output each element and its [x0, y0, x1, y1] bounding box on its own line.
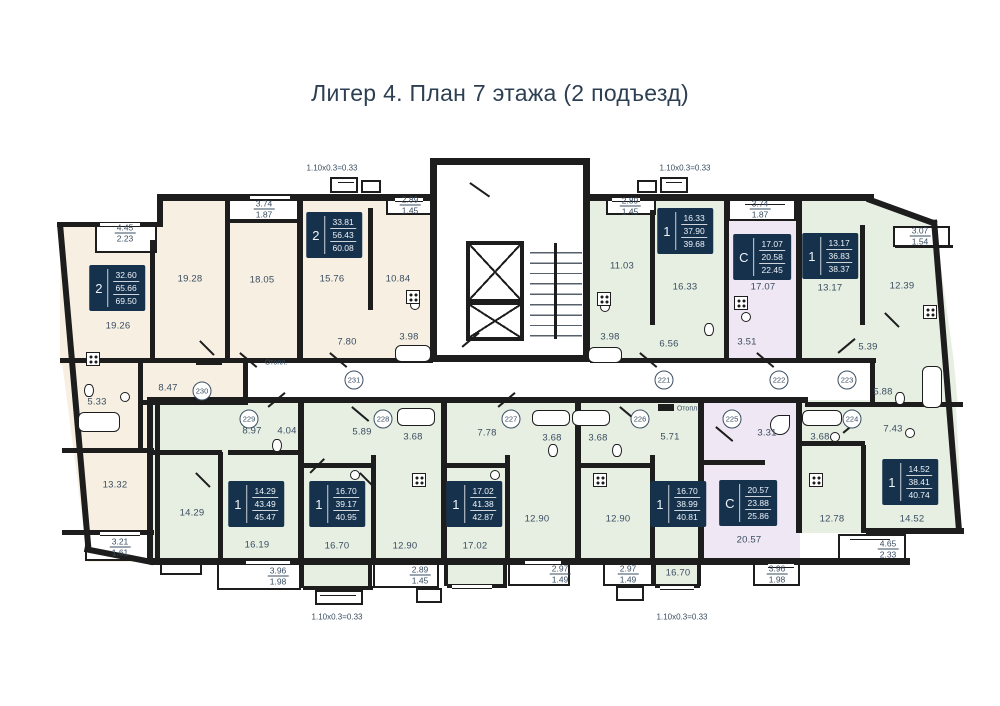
apartment-info-box: 116.7039.1740.95 — [309, 481, 365, 527]
total-area: 40.95 — [333, 510, 358, 523]
wall — [796, 402, 802, 533]
total-area: 60.08 — [330, 241, 355, 254]
room-area-label: 3.68 — [542, 433, 561, 444]
room-area-label: 3.31 — [757, 428, 776, 439]
sink-icon — [120, 392, 130, 402]
balcony-area-bottom: 1.45 — [620, 207, 641, 217]
living-area: 14.52 — [906, 463, 931, 475]
room-area-label: 12.78 — [820, 514, 845, 525]
total-area: 22.45 — [760, 263, 785, 276]
room-area-label: 8.47 — [158, 383, 177, 394]
wall — [445, 463, 509, 468]
balcony-area-bottom: 1.49 — [618, 575, 639, 585]
room-area-label: 5.33 — [87, 397, 106, 408]
apartment-areas: 13.1736.8338.37 — [820, 237, 851, 275]
wall — [228, 450, 302, 455]
apartment-info-box: 114.5238.4140.74 — [882, 459, 938, 505]
toilet-icon — [272, 439, 282, 452]
room-area-label: 5.39 — [858, 342, 877, 353]
balcony-area-top: 3.07 — [910, 226, 931, 237]
living-area: 16.33 — [681, 212, 706, 224]
balcony-area-top: 4.45 — [115, 223, 136, 234]
stove-icon — [593, 473, 607, 487]
living-area: 33.81 — [330, 216, 355, 228]
balcony-area-label: 2.971.49 — [550, 564, 571, 585]
balcony-area-top: 3.74 — [750, 199, 771, 210]
balcony-area-bottom: 1.45 — [400, 206, 421, 216]
heating-label: Отопл. — [677, 406, 699, 413]
room-area-label: 15.76 — [320, 274, 345, 285]
dimension-label: 1.10x0.3=0.33 — [660, 164, 711, 173]
balcony-area-top: 2.89 — [400, 195, 421, 206]
bathtub-icon — [922, 366, 942, 408]
wall — [225, 201, 230, 362]
balcony-area-bottom: 1.61 — [110, 548, 131, 558]
window — [320, 591, 356, 596]
room-area-label: 10.84 — [386, 274, 411, 285]
apartment-number-badge: 228 — [374, 410, 393, 429]
apartment-number-badge: 223 — [838, 371, 857, 390]
window — [246, 560, 290, 565]
wall — [303, 586, 373, 590]
apartment-type: 1 — [315, 497, 322, 512]
apartment-info-box: С17.0720.5822.45 — [733, 234, 791, 280]
floor-plan: 19.2619.2818.058.475.3313.3215.7610.847.… — [0, 0, 1000, 706]
living-area: 20.57 — [746, 484, 771, 496]
window — [452, 584, 492, 589]
room-area-label: 7.43 — [883, 424, 902, 435]
room-area-label: 4.04 — [277, 426, 296, 437]
total-area: 39.68 — [681, 237, 706, 250]
toilet-icon — [704, 323, 714, 336]
sink-icon — [350, 470, 360, 480]
stove-icon — [809, 473, 823, 487]
apartment-number-badge: 222 — [770, 371, 789, 390]
room-area-label: 16.33 — [673, 282, 698, 293]
apartment-areas: 14.5238.4140.74 — [900, 463, 931, 501]
balcony-area-bottom: 1.54 — [910, 237, 931, 247]
balcony-area-top: 2.97 — [550, 564, 571, 575]
room-area-label: 7.80 — [337, 337, 356, 348]
balcony-area-bottom: 1.45 — [410, 576, 431, 586]
apartment-number-badge: 227 — [502, 410, 521, 429]
dimension-label: 1.10x0.3=0.33 — [657, 613, 708, 622]
apartment-areas: 17.0241.3842.87 — [464, 485, 495, 523]
apartment-number-badge: 224 — [843, 410, 862, 429]
wall — [724, 201, 729, 362]
balcony-area-bottom: 1.87 — [254, 210, 275, 220]
apartment-areas: 14.2943.4945.47 — [246, 485, 277, 523]
living-area: 17.07 — [760, 238, 785, 250]
stove-icon — [923, 305, 937, 319]
wall — [581, 463, 653, 468]
balcony-area-bottom: 1.87 — [750, 210, 771, 220]
living-area: 14.29 — [252, 485, 277, 497]
apartment-number-badge: 230 — [193, 382, 212, 401]
floor-plan-page: Литер 4. План 7 этажа (2 подъезд) 19.261… — [0, 0, 1000, 706]
wall — [228, 220, 300, 223]
apartment-areas: 33.8156.4360.08 — [324, 216, 355, 254]
wall — [300, 558, 304, 588]
wall — [368, 558, 372, 588]
apartment-areas: 16.7038.9940.81 — [668, 485, 699, 523]
wall — [698, 397, 704, 560]
balcony-area-top: 4.65 — [878, 539, 899, 550]
wall — [150, 397, 808, 403]
apartment-info-box: 232.6065.6669.50 — [89, 265, 145, 311]
balcony-area-top: 3.96 — [767, 564, 788, 575]
stove-icon — [597, 292, 611, 306]
wall — [147, 397, 153, 560]
room-area-label: 17.07 — [751, 282, 776, 293]
room-area-label: 16.70 — [325, 541, 350, 552]
room-area-label: 13.17 — [818, 283, 843, 294]
bathtub-icon — [532, 410, 570, 426]
wall — [583, 158, 590, 362]
apartment-type: С — [725, 496, 734, 511]
wall — [155, 402, 160, 560]
room-area-label: 3.68 — [403, 432, 422, 443]
total-area: 25.86 — [746, 509, 771, 522]
wall — [861, 445, 866, 533]
floor-area: 43.49 — [252, 497, 277, 510]
stove-icon — [412, 473, 426, 487]
apartment-number-badge: 229 — [240, 410, 259, 429]
sink-icon — [905, 428, 915, 438]
room-area-label: 5.89 — [352, 427, 371, 438]
wall — [297, 201, 303, 362]
sink-icon — [830, 432, 840, 442]
floor-area: 39.17 — [333, 497, 358, 510]
window — [660, 585, 694, 590]
bathtub-icon — [397, 408, 435, 426]
wall — [218, 452, 223, 562]
floor-area: 38.41 — [906, 475, 931, 488]
living-area: 32.60 — [113, 269, 138, 281]
apartment-type: С — [739, 250, 748, 265]
stove-icon — [406, 290, 420, 304]
wall — [866, 528, 964, 534]
total-area: 45.47 — [252, 510, 277, 523]
room-area-label: 6.56 — [659, 339, 678, 350]
floor-area: 37.90 — [681, 224, 706, 237]
room-area-label: 3.98 — [600, 332, 619, 343]
floor-area: 36.83 — [826, 249, 851, 262]
wall — [157, 194, 435, 201]
apartment-areas: 16.3337.9039.68 — [675, 212, 706, 250]
balcony-area-bottom: 1.98 — [268, 577, 289, 587]
balcony-area-label: 2.891.45 — [620, 196, 641, 217]
bathtub-icon — [78, 412, 120, 432]
bathtub-icon — [802, 410, 842, 426]
wall — [243, 362, 248, 402]
balcony-area-top: 2.89 — [620, 196, 641, 207]
room-area-label: 5.71 — [660, 432, 679, 443]
room-area-label: 19.28 — [178, 274, 203, 285]
room-area-label: 14.52 — [900, 514, 925, 525]
wall — [505, 455, 510, 562]
wall — [703, 460, 765, 465]
wall — [650, 210, 655, 325]
apartment-type: 1 — [452, 497, 459, 512]
floor-area: 41.38 — [470, 497, 495, 510]
total-area: 40.74 — [906, 488, 931, 501]
room-area-label: 12.90 — [525, 514, 550, 525]
apartment-areas: 16.7039.1740.95 — [327, 485, 358, 523]
balcony-area-bottom: 1.98 — [767, 575, 788, 585]
apartment-type: 1 — [888, 475, 895, 490]
room-area-label: 3.68 — [810, 432, 829, 443]
room-area-label: 16.19 — [245, 540, 270, 551]
balcony-area-label: 3.071.54 — [910, 226, 931, 247]
balcony-area-label: 3.961.98 — [268, 566, 289, 587]
wall — [796, 201, 802, 362]
balcony-area-top: 3.21 — [110, 537, 131, 548]
balcony-area-top: 2.97 — [618, 564, 639, 575]
apartment-type: 1 — [663, 224, 670, 239]
balcony — [361, 180, 381, 193]
balcony-area-top: 3.74 — [254, 199, 275, 210]
floor-area: 56.43 — [330, 228, 355, 241]
apartment-number-badge: 225 — [723, 410, 742, 429]
balcony-area-top: 2.89 — [410, 565, 431, 576]
wall — [652, 558, 656, 586]
balcony-area-label: 3.961.98 — [767, 564, 788, 585]
balcony-area-label: 3.211.61 — [110, 537, 131, 558]
apartment-number-badge: 231 — [345, 371, 364, 390]
apartment-number-badge: 221 — [655, 371, 674, 390]
total-area: 42.87 — [470, 510, 495, 523]
dimension-label: 1.10x0.3=0.33 — [312, 613, 363, 622]
heating-label: Отопл. — [265, 360, 287, 367]
apartment-type: 1 — [234, 497, 241, 512]
room-area-label: 13.32 — [103, 480, 128, 491]
wall — [444, 558, 448, 586]
apartment-type: 1 — [808, 249, 815, 264]
balcony-area-label: 3.741.87 — [750, 199, 771, 220]
room-area-label: 12.39 — [890, 281, 915, 292]
window — [100, 531, 140, 536]
bathtub-icon — [395, 345, 431, 362]
toilet-icon — [84, 384, 94, 397]
apartment-areas: 20.5723.8825.86 — [740, 484, 771, 522]
room-area-label: 17.02 — [463, 541, 488, 552]
wall — [150, 240, 155, 362]
radiator-icon — [196, 358, 222, 365]
dimension-label: 1.10x0.3=0.33 — [307, 164, 358, 173]
room-area-label: 14.29 — [180, 508, 205, 519]
sink-icon — [741, 312, 751, 322]
balcony-area-label: 4.452.23 — [115, 223, 136, 244]
wall — [590, 358, 876, 363]
apartment-info-box: С20.5723.8825.86 — [719, 480, 777, 526]
floor-area: 38.99 — [674, 497, 699, 510]
apartment-info-box: 113.1736.8338.37 — [802, 233, 858, 279]
room-area-label: 19.26 — [106, 321, 131, 332]
apartment-areas: 17.0720.5822.45 — [754, 238, 785, 276]
balcony — [637, 180, 657, 193]
balcony-area-bottom: 2.33 — [878, 550, 899, 560]
total-area: 38.37 — [826, 262, 851, 275]
balcony — [416, 588, 442, 603]
apartment-info-box: 114.2943.4945.47 — [228, 481, 284, 527]
room-area-label: 3.51 — [737, 337, 756, 348]
apartment-areas: 32.6065.6669.50 — [107, 269, 138, 307]
apartment-type: 2 — [95, 281, 102, 296]
living-area: 13.17 — [826, 237, 851, 249]
room-area-label: 12.90 — [393, 541, 418, 552]
balcony-area-label: 3.741.87 — [254, 199, 275, 220]
apartment-info-box: 116.7038.9940.81 — [650, 481, 706, 527]
apartment-number-badge: 226 — [631, 410, 650, 429]
room-area-label: 20.57 — [737, 535, 762, 546]
radiator-icon — [658, 404, 674, 411]
wall — [860, 225, 865, 325]
window — [338, 178, 354, 183]
living-area: 16.70 — [333, 485, 358, 497]
room-area-label: 16.70 — [666, 568, 691, 579]
balcony-area-label: 2.891.45 — [410, 565, 431, 586]
balcony-area-bottom: 2.23 — [115, 234, 136, 244]
wall — [432, 355, 592, 362]
wall — [298, 397, 304, 560]
living-area: 16.70 — [674, 485, 699, 497]
balcony-area-label: 2.971.49 — [618, 564, 639, 585]
balcony-area-label: 4.652.33 — [878, 539, 899, 560]
wall — [430, 158, 437, 362]
sink-icon — [490, 470, 500, 480]
wall — [441, 397, 447, 560]
apartment-type: 1 — [656, 497, 663, 512]
balcony-area-top: 3.96 — [268, 566, 289, 577]
balcony-area-bottom: 1.49 — [550, 575, 571, 585]
room-area-label: 11.03 — [610, 261, 634, 272]
total-area: 40.81 — [674, 510, 699, 523]
room-area-label: 3.98 — [399, 332, 418, 343]
balcony — [616, 586, 644, 601]
floor-area: 23.88 — [746, 496, 771, 509]
total-area: 69.50 — [113, 294, 138, 307]
bathtub-icon — [588, 347, 622, 363]
room-area-label: 3.68 — [588, 433, 607, 444]
toilet-icon — [895, 392, 905, 405]
wall — [371, 455, 376, 562]
apartment-info-box: 116.3337.9039.68 — [657, 208, 713, 254]
apartment-type: 2 — [312, 228, 319, 243]
elevator-shaft — [466, 241, 524, 303]
living-area: 17.02 — [470, 485, 495, 497]
wall — [368, 208, 373, 310]
wall — [138, 362, 143, 450]
floor-area: 20.58 — [760, 250, 785, 263]
floor-area: 65.66 — [113, 281, 138, 294]
window — [666, 178, 682, 183]
bathtub-icon — [572, 410, 610, 426]
wall — [503, 558, 507, 586]
wall — [554, 243, 557, 339]
stove-icon — [86, 352, 100, 366]
toilet-icon — [612, 444, 622, 457]
room-area-label: 5.88 — [873, 387, 892, 398]
wall — [150, 450, 222, 455]
stove-icon — [734, 296, 748, 310]
room-area-label: 7.78 — [477, 428, 496, 439]
room-area-label: 12.90 — [606, 514, 631, 525]
toilet-icon — [548, 444, 558, 457]
wall — [697, 558, 701, 586]
room-area-label: 18.05 — [250, 275, 275, 286]
balcony-area-label: 2.891.45 — [400, 195, 421, 216]
apartment-info-box: 117.0241.3842.87 — [446, 481, 502, 527]
apartment-info-box: 233.8156.4360.08 — [306, 212, 362, 258]
wall — [430, 158, 590, 165]
wall — [62, 448, 154, 453]
balcony — [217, 562, 301, 590]
